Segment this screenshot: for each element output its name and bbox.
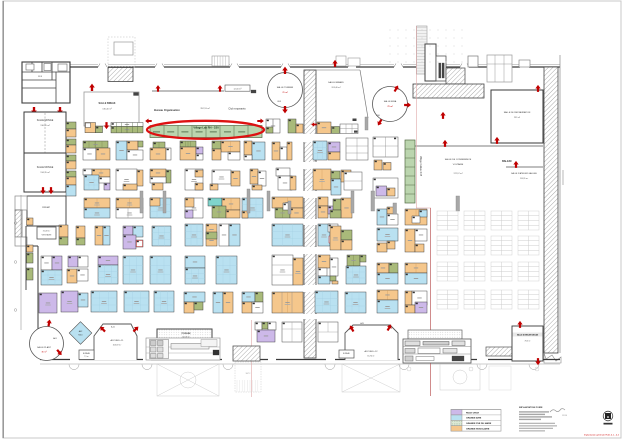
svg-text:31,08 m²: 31,08 m² (43, 230, 51, 233)
svg-text:BALZAC: BALZAC (502, 160, 512, 163)
svg-text:SDS: SDS (38, 76, 43, 78)
svg-text:SALLE DE RESTAURATION: SALLE DE RESTAURATION (504, 111, 531, 114)
svg-text:78 m²: 78 m² (387, 105, 393, 108)
svg-text:36 m²: 36 m² (41, 351, 46, 354)
svg-text:SALLE BRIAND: SALLE BRIAND (328, 81, 344, 84)
svg-text:SALLE DE CONFERENCE: SALLE DE CONFERENCE (445, 158, 472, 161)
svg-text:IMPLANTATION FOIRE: IMPLANTATION FOIRE (519, 406, 543, 409)
svg-text:SALLE TURNER: SALLE TURNER (277, 86, 294, 89)
svg-text:PODIUM: PODIUM (182, 333, 191, 335)
svg-text:Bureau Organisation: Bureau Organisation (154, 108, 180, 112)
svg-text:Accueil: Accueil (42, 206, 50, 209)
svg-text:Implantation générale Halls 4.: Implantation générale Halls 4.1 - 4.2 (584, 434, 620, 437)
svg-text:VOLTAIRE: VOLTAIRE (453, 163, 464, 166)
svg-text:VESTIAIRE: VESTIAIRE (42, 234, 53, 237)
svg-text:Village Lab RH - G20: Village Lab RH - G20 (193, 126, 219, 130)
svg-text:SALLE PLANT: SALLE PLANT (37, 346, 51, 349)
svg-text:76 m²: 76 m² (282, 91, 288, 94)
svg-text:352,53 m²: 352,53 m² (200, 107, 210, 110)
svg-text:GRANDE MODULAIRE: GRANDE MODULAIRE (466, 428, 490, 431)
svg-text:203,46 m²: 203,46 m² (331, 86, 340, 89)
svg-text:Village Culture 4.08: Village Culture 4.08 (419, 156, 422, 177)
svg-text:103,59 m²: 103,59 m² (113, 344, 122, 347)
svg-text:PACK ORCH: PACK ORCH (466, 411, 480, 414)
svg-text:134,35 m²: 134,35 m² (40, 171, 50, 174)
svg-text:GRANDE FSE DU MARE: GRANDE FSE DU MARE (466, 422, 492, 425)
svg-text:A-01: A-01 (111, 326, 115, 329)
svg-text:SALLE MONGE: SALLE MONGE (37, 166, 54, 169)
svg-text:372,97 m²: 372,97 m² (453, 172, 462, 175)
svg-text:13/10: 13/10 (562, 415, 568, 417)
svg-text:SALLE EIRA: SALLE EIRA (384, 100, 397, 103)
svg-text:ACCUEIL 4.1: ACCUEIL 4.1 (110, 339, 124, 342)
svg-text:12,00 m²: 12,00 m² (234, 87, 242, 90)
svg-text:SALLE BREAK: SALLE BREAK (98, 102, 115, 105)
svg-text:MILD: MILD (78, 335, 83, 337)
svg-text:78,3 m²: 78,3 m² (524, 340, 530, 343)
svg-text:114,95 m²: 114,95 m² (520, 177, 529, 180)
svg-text:55,74 m²: 55,74 m² (367, 355, 375, 358)
svg-text:SALLE D'ATELIER DEGAS: SALLE D'ATELIER DEGAS (517, 334, 539, 337)
svg-text:130,40 m²: 130,40 m² (102, 108, 112, 111)
svg-text:ACCUEIL 4.2: ACCUEIL 4.2 (364, 350, 378, 353)
svg-text:B: B (607, 415, 609, 419)
svg-text:GRANDE AIRE: GRANDE AIRE (466, 417, 482, 420)
svg-text:SALLE MONGE: SALLE MONGE (37, 119, 54, 122)
svg-text:Club exposants: Club exposants (228, 108, 246, 111)
svg-text:A43: A43 (360, 322, 363, 325)
svg-text:232 m²: 232 m² (514, 116, 521, 119)
svg-text:136,20 m²: 136,20 m² (40, 124, 50, 127)
svg-text:SALLE D'ATELIER GALILEE: SALLE D'ATELIER GALILEE (511, 172, 537, 175)
svg-text:BUREAU: BUREAU (83, 352, 91, 355)
svg-text:SETC: SETC (246, 373, 251, 375)
